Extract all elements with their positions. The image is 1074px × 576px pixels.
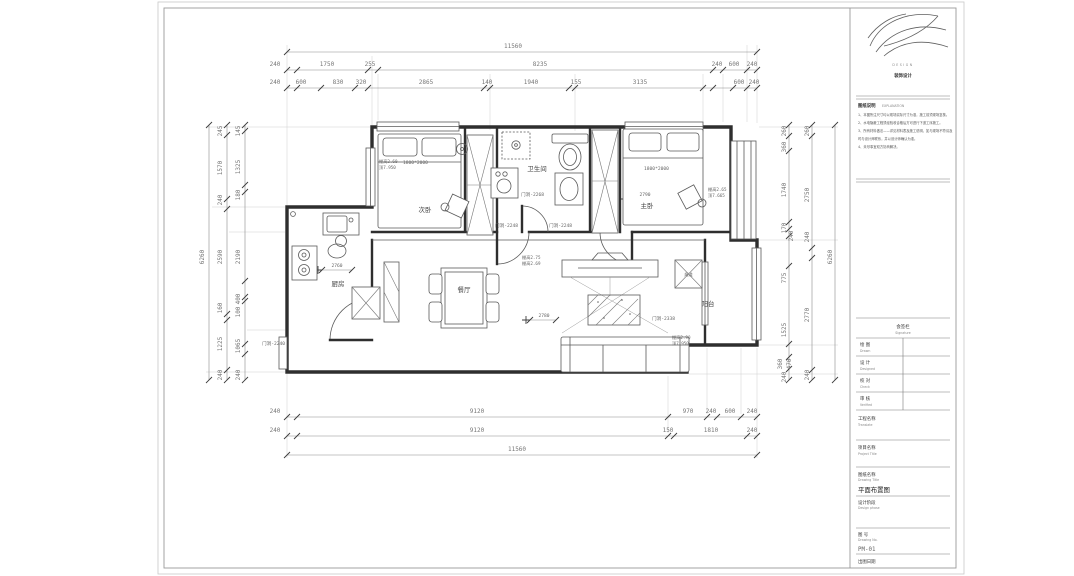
dim-text: 150 [663,427,674,434]
dim-text: 360 [781,141,788,152]
logo-text-en: DESIGN [892,63,913,67]
dim-text: 155 [571,79,582,86]
annotation: 棚高2.65 [708,186,727,193]
dim-text: 1810 [704,427,719,434]
dim-text: 3135 [633,79,648,86]
floorplan-svg: 11560 240 1750 255 8235 240 600 240 240 … [0,0,1074,576]
logo: DESIGN 装饰设计 [868,14,948,79]
dim-text: 470 [786,358,793,369]
annotation: 棚高2.75 [522,254,541,261]
dim-text: 240 [270,427,281,434]
dim-text: 2190 [235,249,242,264]
dim-text: 240 [712,61,723,68]
signoff-row-cn: 校 对 [860,377,871,384]
bedroom2-furniture [623,129,706,225]
annotation: 棚高2.69 [522,260,541,267]
door-label: 门洞-2240 [262,340,285,347]
title-block: DESIGN 装饰设计 图纸说明 EXPLANATION 1、本图所注尺寸均以现… [856,14,953,565]
signoff-row-cn: 审 核 [860,395,871,402]
dim-text: 2865 [419,79,434,86]
dim-text: 1225 [217,336,224,351]
annotation: 棚高2.90 [672,334,691,341]
dim-text: 240 [235,369,242,380]
dim-text: 2590 [217,249,224,264]
dim-text: 11560 [508,446,526,453]
signoff-header-en: Signature [895,331,910,335]
dim-text: 145 [235,125,242,136]
dim-text: 8235 [533,61,548,68]
dim-text: 245 [217,125,224,136]
dim-text: 240 [747,408,758,415]
dim-text: 11560 [504,43,522,50]
signoff-row-en: Designed [860,367,875,371]
dim-text: 9120 [470,408,485,415]
dim-text: 240 [217,194,224,205]
project-title-label-en: Project Title [858,452,877,456]
dim-text: 400 [235,293,242,304]
signoff-row-en: Check [860,385,870,389]
dim-text: 1325 [235,159,242,174]
dim-text: 1750 [320,61,335,68]
dim-text: 320 [356,79,367,86]
dim-text: 240 [749,79,760,86]
dim-text: 2790 [639,192,650,198]
design-phase-label-en: Design phase [858,506,880,510]
dim-text: 9120 [470,427,485,434]
room-label-dining: 餐厅 [458,285,472,294]
dim-text: 830 [333,79,344,86]
explanation-title-cn: 图纸说明 [858,102,876,109]
room-label-kitchen: 厨房 [332,279,345,288]
drawing-no-label-en: Drawing No. [858,538,878,542]
room-label-bath: 卫生间 [527,164,547,173]
dim-text: 160 [217,302,224,313]
drawing-sheet: 11560 240 1750 255 8235 240 600 240 240 … [0,0,1074,576]
translate-label-en: Translate [857,423,873,427]
dim-text: 600 [296,79,307,86]
dim-text: 240 [270,408,281,415]
note-line: 3、所有材料做法——详见材料表及施工说明，如与现场不符请及 [858,128,953,133]
issue-date-label: 出图日期 [858,558,876,565]
dim-texts-right: 260 360 1740 170 240 775 1525 360 470 24… [777,125,834,382]
dim-text: 775 [781,272,788,283]
drawing-title-value: 平面布置图 [858,485,890,494]
signoff-row-cn: 绘 图 [860,341,871,348]
dim-text: 100 [235,306,242,317]
dim-text: 1570 [217,160,224,175]
dim-text: 180 [235,189,242,200]
dim-text: 240 [270,79,281,86]
dim-texts-left: 6260 245 1570 240 2590 160 1225 240 145 … [199,125,242,380]
annotation: 棚高2.60 [379,158,398,165]
room-label-balcony: 阳台 [702,299,715,308]
drawing-title-label-en: Drawing Title [858,478,879,482]
dim-text: 2780 [538,313,549,319]
dim-text: 2770 [804,307,811,322]
dim-text: 140 [482,79,493,86]
dim-text: 2760 [331,263,342,269]
project-title-label-cn: 项目名称 [858,444,876,451]
dim-texts-top: 11560 240 1750 255 8235 240 600 240 240 … [270,43,760,86]
dim-text: 240 [747,427,758,434]
note-line: 时与设计师联系，并以设计师确认为准。 [858,136,917,141]
dim-text: 1740 [781,182,788,197]
dining-furniture [429,268,499,328]
dim-text: 240 [788,230,795,241]
drawing-no-value: PM-01 [858,547,876,553]
logo-text-cn: 装饰设计 [894,72,912,79]
room-label-flue: 烟道 [684,271,693,278]
drawing-title-label-cn: 图纸名称 [858,471,876,478]
dim-text: 255 [365,61,376,68]
dim-text: 240 [781,371,788,382]
note-line: 4、未尽事宜双方协商解决。 [858,144,900,149]
signoff-row-cn: 设 计 [860,359,871,366]
door-label: 门洞-2248 [549,222,572,229]
bed-size-label: 1800*2000 [403,160,428,166]
dim-text: 260 [781,125,788,136]
dim-text: 970 [683,408,694,415]
dim-text: 170 [781,222,788,233]
annotation: 顶7.665 [708,193,725,199]
dim-text: 240 [804,231,811,242]
dim-text: 240 [217,369,224,380]
dim-text: 2750 [804,187,811,202]
dim-text: 600 [729,61,740,68]
signoff-row-en: Drawn [860,349,870,353]
room-label-bedroom: 次卧 [419,205,433,214]
signoff-header-cn: 会签栏 [896,323,910,330]
door-label: 门洞-2268 [521,191,544,198]
dim-text: 1940 [524,79,539,86]
dim-text: 360 [777,358,784,369]
dim-text: 240 [706,408,717,415]
explanation-title-en: EXPLANATION [882,104,905,108]
dim-text: 240 [747,61,758,68]
door-label: 门洞-2338 [652,315,675,322]
note-line: 2、水电隐蔽工程须经验收合格后方可进行下道工序施工。 [858,120,943,125]
room-label-master: 主卧 [641,201,655,210]
dim-text: 600 [734,79,745,86]
dim-text: 240 [804,369,811,380]
dim-text: 240 [270,61,281,68]
translate-label-cn: 工程名称 [858,415,876,422]
door-label: 门洞-2248 [495,222,518,229]
dim-text: 1065 [235,338,242,353]
dim-text: 6260 [827,249,834,264]
dim-text: 600 [725,408,736,415]
note-line: 1、本图所注尺寸均以现场实际尺寸为准，施工前须现场复核。 [858,112,949,117]
living-furniture [561,253,689,372]
design-phase-label-cn: 设计阶段 [858,499,876,506]
signoff-row-en: Verified [860,403,872,407]
bed-size-label: 1800*2000 [644,166,669,172]
dim-text: 6260 [199,249,206,264]
dim-text: 260 [804,125,811,136]
dim-texts-bottom: 240 9120 970 240 600 240 240 9120 150 18… [270,408,758,453]
dim-text: 1525 [781,322,788,337]
